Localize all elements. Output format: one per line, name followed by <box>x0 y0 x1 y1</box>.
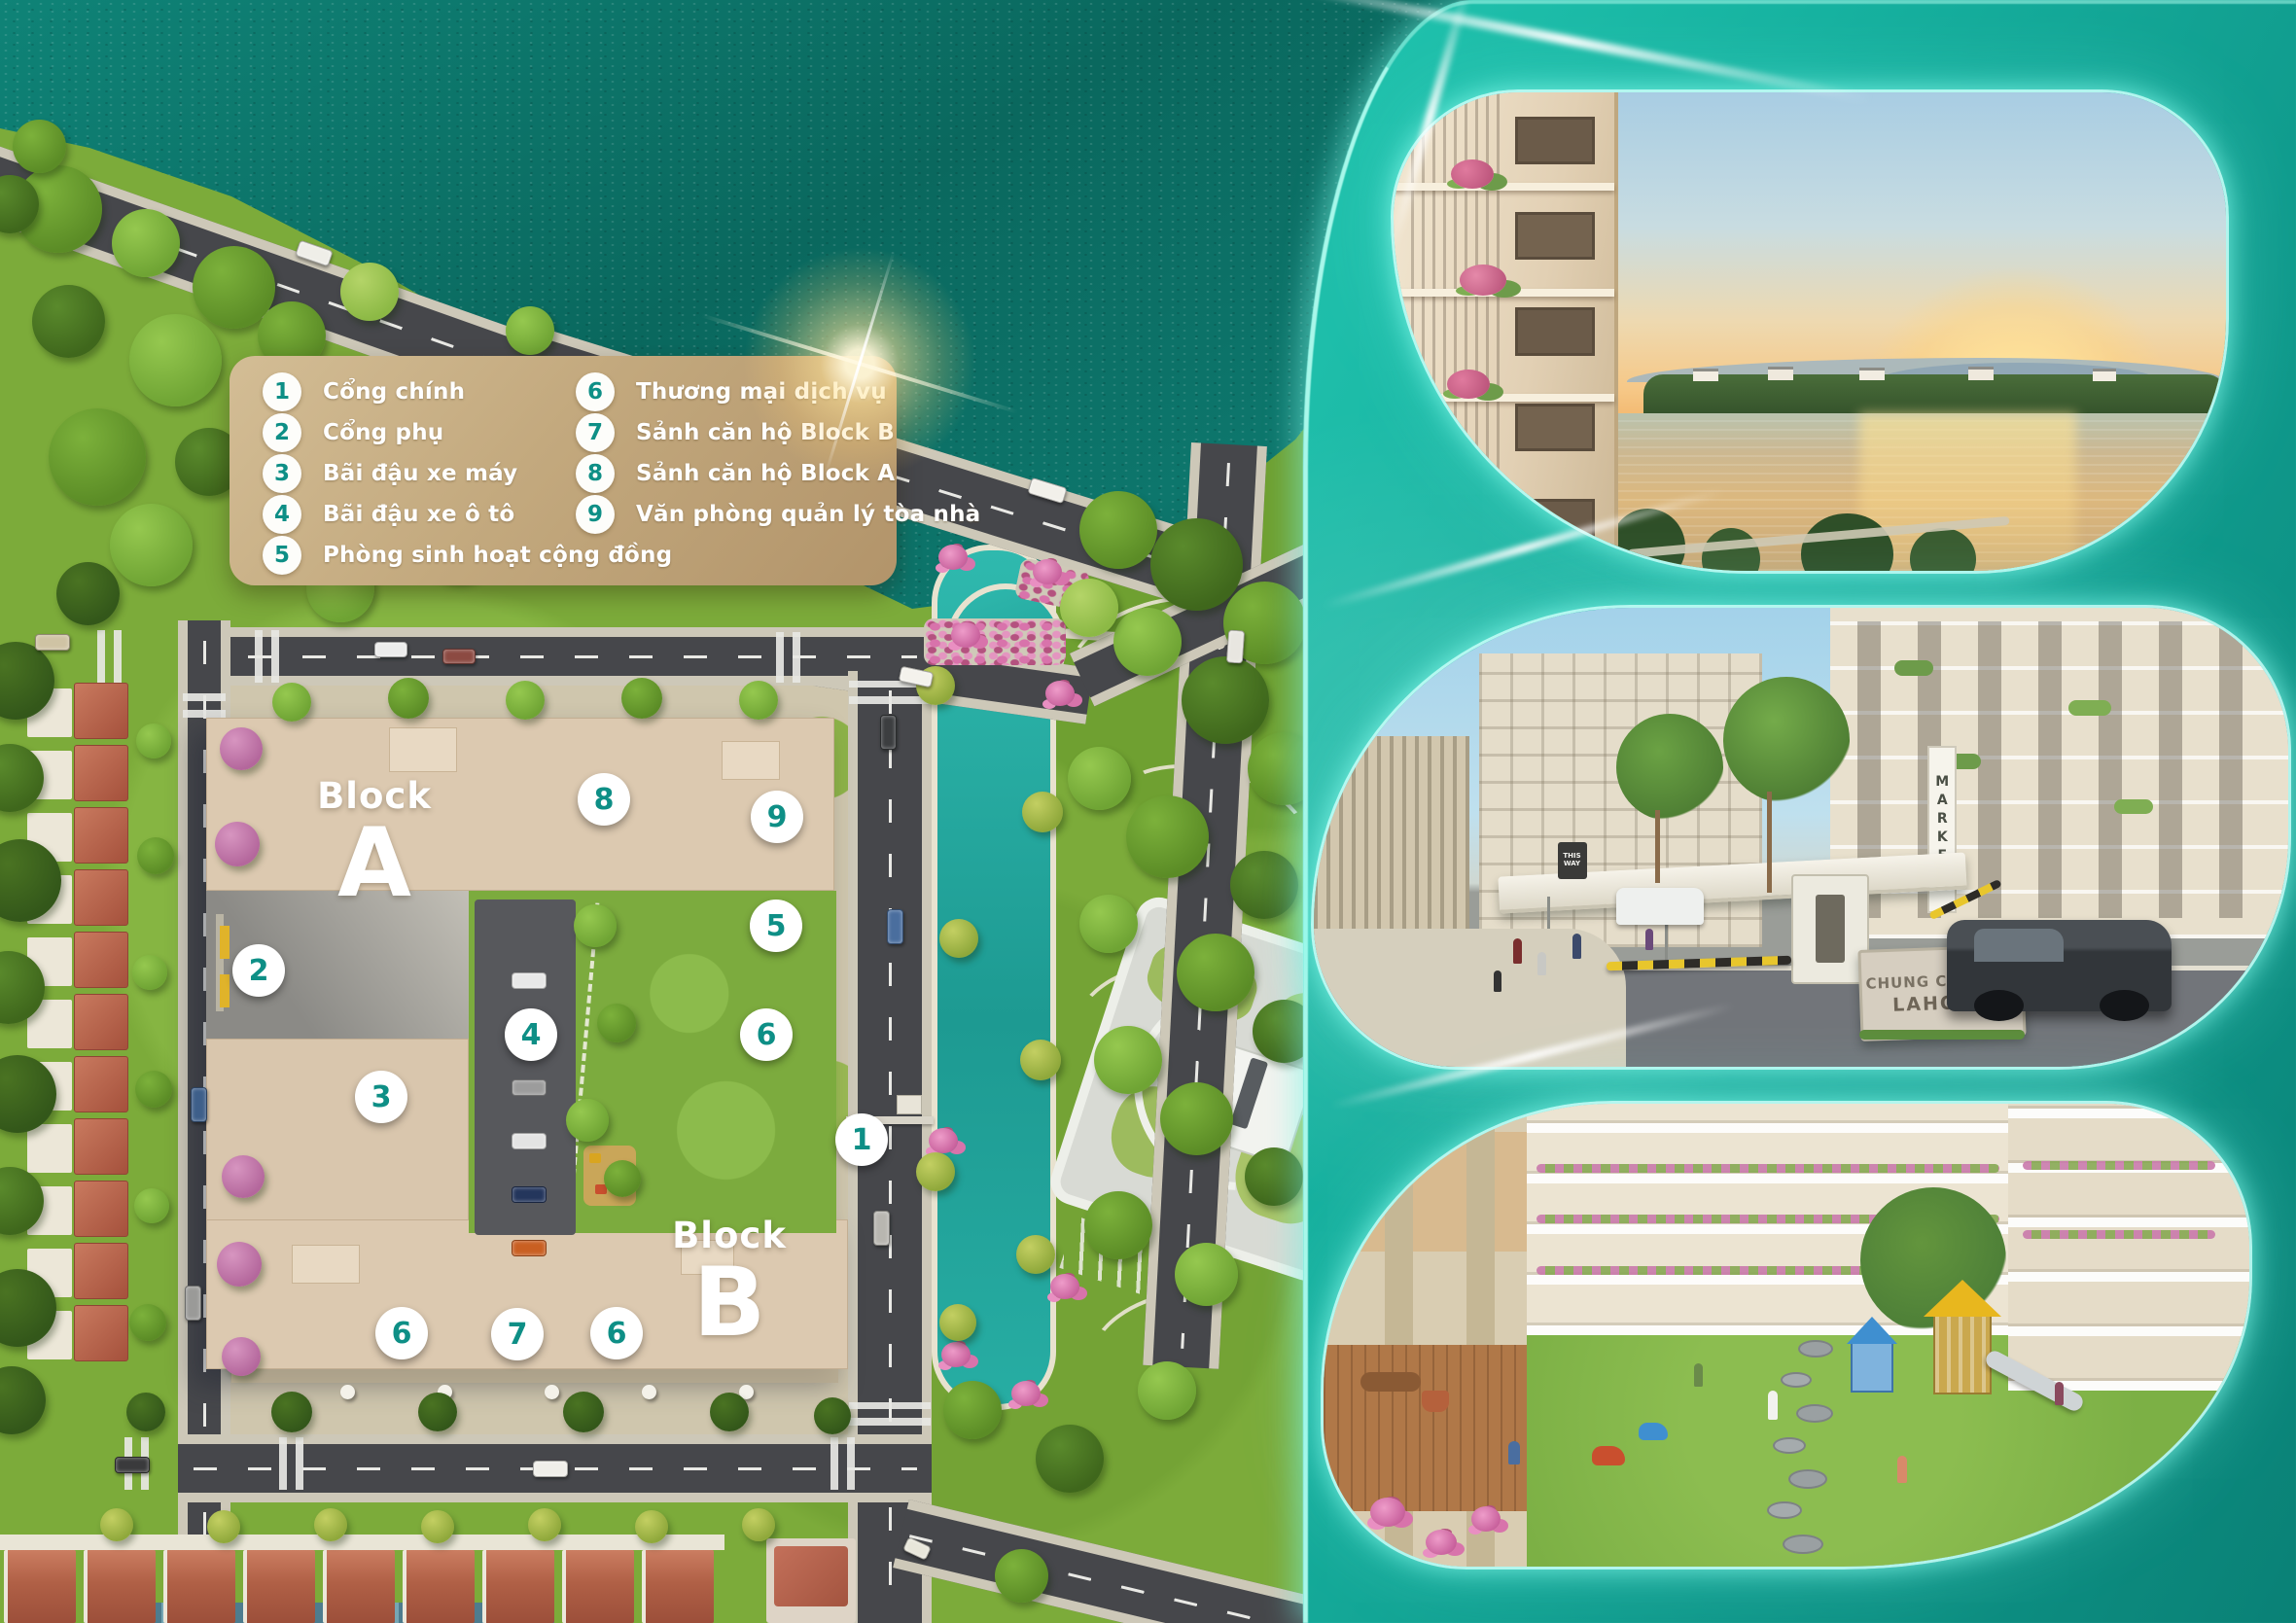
car <box>374 642 407 657</box>
townhouse-roof <box>74 1181 128 1237</box>
tree <box>574 904 617 947</box>
tree <box>1079 491 1157 569</box>
side-gate-barrier <box>220 974 230 1007</box>
tree <box>528 1508 561 1541</box>
map-marker-6: 6 <box>375 1307 428 1359</box>
tree <box>222 1337 261 1376</box>
townhouse-roof <box>74 1305 128 1361</box>
flower-cluster <box>1011 1381 1041 1406</box>
palm-tree <box>1723 677 1850 803</box>
tree <box>112 209 180 277</box>
tree <box>916 1152 955 1191</box>
person <box>1537 952 1546 975</box>
tree <box>220 727 263 770</box>
map-marker-6: 6 <box>740 1008 793 1061</box>
tree <box>943 1381 1002 1439</box>
person <box>2055 1382 2064 1405</box>
flower-cluster <box>1050 1274 1079 1299</box>
tree <box>566 1099 609 1142</box>
tree <box>13 120 66 173</box>
white-car <box>1616 888 1704 925</box>
townhouse-roof <box>163 1550 235 1623</box>
balcony-flowers <box>1447 370 1490 399</box>
townhouse-roof <box>74 869 128 926</box>
tree <box>136 723 171 759</box>
car <box>1226 629 1245 663</box>
legend-item-number: 4 <box>263 495 301 534</box>
townhouse-roof <box>642 1550 714 1623</box>
car <box>191 1087 207 1122</box>
tree <box>134 1188 169 1223</box>
map-marker-3: 3 <box>355 1071 407 1123</box>
zebra-crossing <box>279 1437 304 1490</box>
legend-item-label: Văn phòng quản lý tòa nhà <box>636 502 980 527</box>
person <box>1645 929 1653 950</box>
tree <box>563 1392 604 1432</box>
villas <box>1643 374 2226 417</box>
car <box>185 1286 201 1321</box>
parked-car <box>512 972 547 989</box>
legend-item-number: 5 <box>263 536 301 575</box>
tree <box>126 1393 165 1431</box>
tree <box>1177 934 1254 1011</box>
tree <box>421 1510 454 1543</box>
townhouse <box>27 1124 72 1173</box>
townhouse-roof <box>243 1550 315 1623</box>
roof-structure <box>722 741 780 780</box>
main-gate-booth <box>897 1095 922 1114</box>
tree <box>506 681 545 720</box>
courtyard-parking <box>475 900 576 1235</box>
tree <box>1138 1361 1196 1420</box>
tree <box>207 1510 240 1543</box>
legend-item-number: 9 <box>576 495 615 534</box>
stepping-stones <box>1731 1335 1860 1567</box>
zebra-crossing <box>849 1402 931 1426</box>
townhouse-roof <box>74 1056 128 1112</box>
flower-cluster <box>938 545 968 570</box>
tree <box>939 1304 976 1341</box>
legend-item-label: Bãi đậu xe ô tô <box>323 502 514 527</box>
car <box>442 649 476 664</box>
townhouse-roof <box>403 1550 475 1623</box>
left-building <box>1324 1104 1527 1567</box>
parked-car <box>512 1240 547 1256</box>
flower-cluster <box>941 1342 971 1367</box>
balcony-facade <box>1394 92 1618 571</box>
townhouse-roof <box>323 1550 395 1623</box>
tree <box>1245 1147 1303 1206</box>
tree <box>1160 1082 1233 1155</box>
tree <box>1068 747 1131 810</box>
tree <box>1094 1026 1162 1094</box>
tree <box>739 681 778 720</box>
legend-item-number: 8 <box>576 454 615 493</box>
tree <box>418 1393 457 1431</box>
tree <box>1016 1235 1055 1274</box>
tree <box>1230 851 1298 919</box>
corner-building-roof <box>774 1546 848 1606</box>
tree <box>271 1392 312 1432</box>
car <box>880 715 897 750</box>
tree <box>314 1508 347 1541</box>
person <box>1694 1363 1703 1387</box>
townhouse-roof <box>74 745 128 801</box>
tree <box>193 246 275 329</box>
tree <box>129 1304 166 1341</box>
tree <box>1036 1425 1104 1493</box>
legend-item-number: 1 <box>263 372 301 411</box>
north-road <box>178 627 932 686</box>
inset-entrance-gate-view: MARKET CHUNG CƯ NOXH LAHOME THIS WAY <box>1311 605 2291 1070</box>
block-b-label: Block B <box>669 1217 790 1351</box>
side-gate-barrier <box>220 926 230 959</box>
flower-cluster <box>951 622 980 648</box>
car <box>115 1457 150 1473</box>
tree <box>742 1508 775 1541</box>
tree <box>814 1397 851 1434</box>
balcony-flowers <box>1451 159 1494 189</box>
right-building <box>2008 1104 2249 1391</box>
car <box>887 909 903 944</box>
masterplan-poster: 1Cổng chính2Cổng phụ3Bãi đậu xe máy4Bãi … <box>0 0 2296 1623</box>
tree <box>137 837 174 874</box>
person <box>1508 1441 1520 1464</box>
townhouse-roof <box>74 994 128 1050</box>
tree <box>1084 1191 1152 1259</box>
townhouse-roof <box>74 1118 128 1175</box>
tree <box>635 1510 668 1543</box>
black-car <box>1947 920 2171 1011</box>
zebra-crossing <box>255 630 280 683</box>
plaza-umbrella <box>545 1385 559 1399</box>
inset-sunset-river-view <box>1391 89 2229 574</box>
balcony-flowers <box>1460 265 1506 296</box>
parked-car <box>512 1079 547 1096</box>
map-marker-1: 1 <box>835 1113 888 1166</box>
legend-item-label: Bãi đậu xe máy <box>323 461 517 486</box>
tree <box>506 306 554 355</box>
person <box>1572 934 1581 959</box>
tree <box>1150 518 1243 611</box>
tree <box>110 504 193 586</box>
playground-blue-tower <box>1847 1317 1897 1393</box>
person <box>1494 970 1501 992</box>
tree <box>222 1155 265 1198</box>
legend-item-number: 6 <box>576 372 615 411</box>
map-marker-4: 4 <box>505 1008 557 1061</box>
map-marker-6: 6 <box>590 1307 643 1359</box>
tree <box>215 822 260 866</box>
this-way-sign: THIS WAY <box>1558 842 1587 879</box>
townhouse-roof <box>74 932 128 988</box>
zebra-crossing <box>830 1437 858 1490</box>
tree <box>710 1393 749 1431</box>
townhouse-roof <box>562 1550 634 1623</box>
tree <box>49 408 146 506</box>
wood-deck <box>1324 1345 1527 1511</box>
zebra-crossing <box>183 692 226 718</box>
tree <box>388 678 429 719</box>
tree <box>1020 1040 1061 1080</box>
map-marker-9: 9 <box>751 791 803 843</box>
tree <box>340 263 399 321</box>
tree <box>135 1071 172 1108</box>
car <box>873 1211 890 1246</box>
flower-pergola <box>924 618 1066 665</box>
tree <box>1182 656 1269 744</box>
tree <box>597 1004 636 1042</box>
plaza-umbrella <box>642 1385 656 1399</box>
tree <box>1060 579 1118 637</box>
tree <box>0 1366 46 1434</box>
car <box>533 1461 568 1477</box>
southeast-road <box>893 1500 1354 1623</box>
spring-rider <box>1592 1446 1625 1465</box>
plaza-umbrella <box>340 1385 355 1399</box>
tree <box>604 1160 641 1197</box>
tree <box>129 314 222 406</box>
flower-row <box>1537 1164 1999 1173</box>
block-a-label: Block A <box>292 778 457 911</box>
tree <box>100 1508 133 1541</box>
map-marker-7: 7 <box>491 1308 544 1360</box>
legend-item-label: Cổng chính <box>323 379 465 405</box>
flower-cluster <box>1045 681 1075 706</box>
waterfront-trees <box>1610 509 1685 574</box>
tree <box>995 1549 1048 1603</box>
car <box>35 634 70 651</box>
legend-item-number: 2 <box>263 413 301 452</box>
roof-structure <box>389 727 457 772</box>
flower-cluster <box>1370 1498 1405 1527</box>
map-marker-5: 5 <box>750 900 802 952</box>
townhouse-roof <box>74 807 128 864</box>
legend-item-number: 3 <box>263 454 301 493</box>
flower-cluster <box>929 1128 958 1153</box>
tree <box>32 285 105 358</box>
parked-car <box>512 1186 547 1203</box>
tree <box>1022 792 1063 832</box>
playground-yellow-tower <box>1916 1280 2009 1396</box>
map-marker-8: 8 <box>578 773 630 826</box>
tree <box>132 955 167 990</box>
townhouse-roof <box>84 1550 156 1623</box>
parked-car <box>512 1133 547 1149</box>
inset-courtyard-playground-view <box>1321 1101 2252 1570</box>
legend-item: 5Phòng sinh hoạt cộng đồng <box>263 535 672 576</box>
townhouse-roof <box>74 1243 128 1299</box>
legend-item-number: 7 <box>576 413 615 452</box>
tree <box>939 919 978 958</box>
tree <box>56 562 120 625</box>
planter-pot <box>1422 1391 1449 1412</box>
retail-awning <box>231 1369 838 1383</box>
tree <box>217 1242 262 1287</box>
tree <box>1079 895 1138 953</box>
map-marker-2: 2 <box>232 944 285 997</box>
tree <box>272 683 311 722</box>
bench <box>1360 1372 1421 1392</box>
palm-tree <box>1616 714 1723 821</box>
townhouse-roof <box>74 683 128 739</box>
tree <box>621 678 662 719</box>
spring-rider <box>1639 1423 1668 1440</box>
tree <box>1126 795 1209 878</box>
legend-item-label: Cổng phụ <box>323 420 443 445</box>
tree <box>1113 608 1182 676</box>
zebra-crossing <box>776 632 803 683</box>
zebra-crossing <box>97 630 126 683</box>
person <box>1897 1456 1907 1483</box>
legend-item-label: Phòng sinh hoạt cộng đồng <box>323 543 672 568</box>
townhouse-roof <box>482 1550 554 1623</box>
roof-structure <box>292 1245 360 1284</box>
person <box>1768 1391 1778 1420</box>
flower-cluster <box>1426 1530 1457 1555</box>
legend-item: 9Văn phòng quản lý tòa nhà <box>576 494 980 535</box>
townhouse-roof <box>4 1550 76 1623</box>
tree <box>1175 1243 1238 1306</box>
person <box>1513 938 1522 964</box>
flower-cluster <box>1033 559 1062 584</box>
